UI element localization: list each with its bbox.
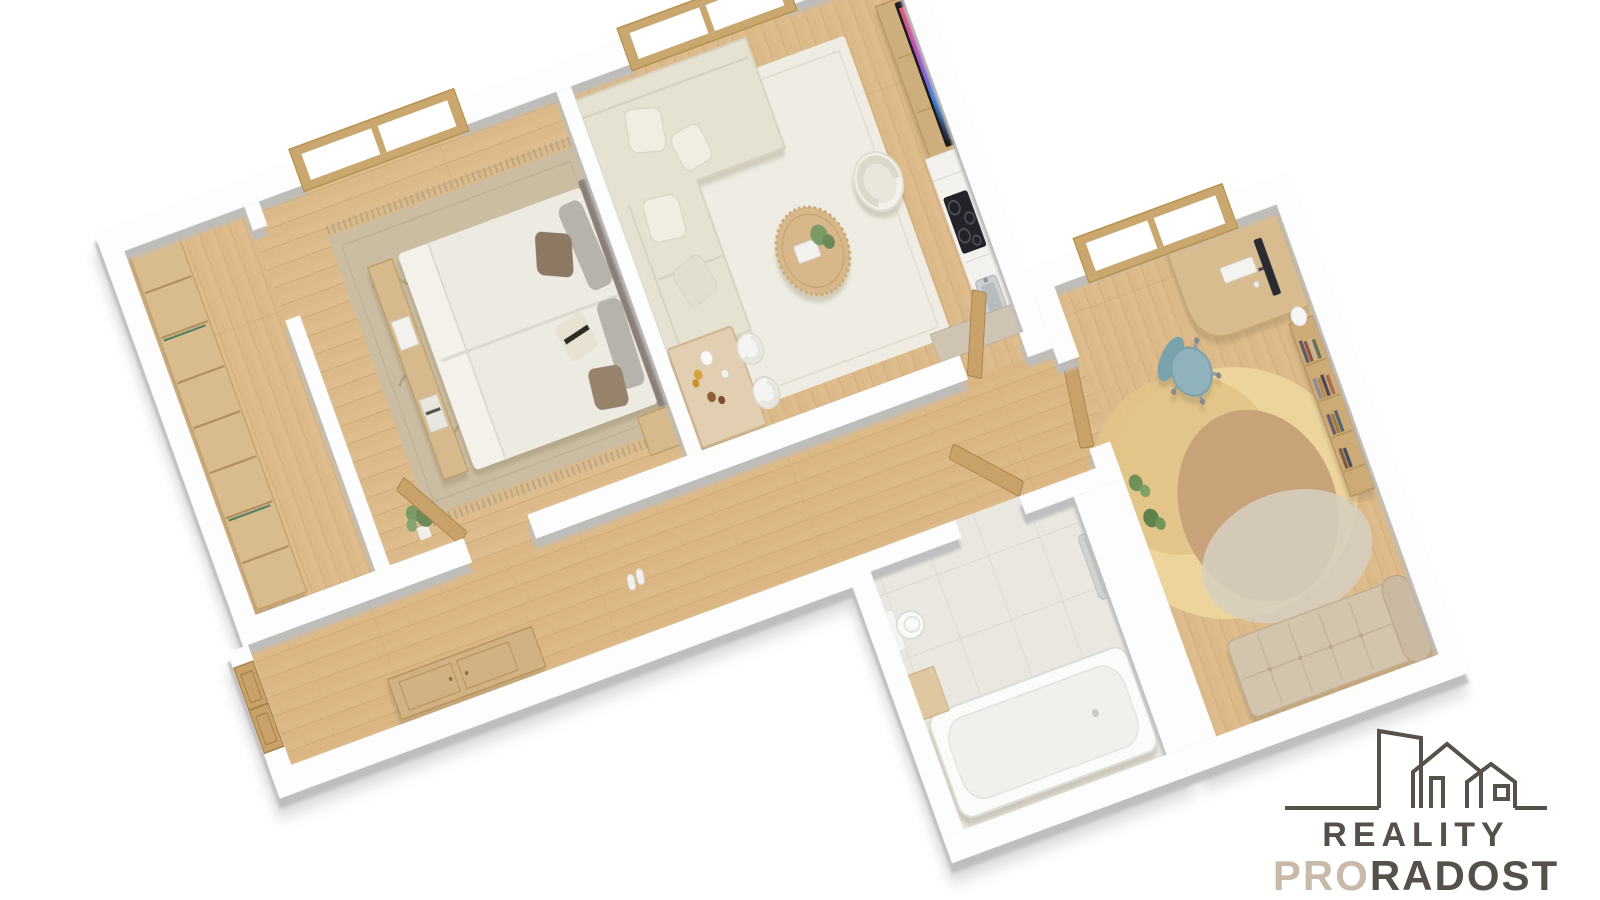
brand-line2-main: RADOST (1370, 852, 1559, 899)
floor-plan-render: REALITY PRORADOST (0, 0, 1600, 900)
logo: REALITY PRORADOST (1246, 716, 1586, 898)
building-skyline-icon (1276, 716, 1556, 816)
brand-line2-accent: PRO (1273, 852, 1370, 899)
brand-line2: PRORADOST (1246, 854, 1586, 898)
brand-line1: REALITY (1246, 818, 1586, 854)
